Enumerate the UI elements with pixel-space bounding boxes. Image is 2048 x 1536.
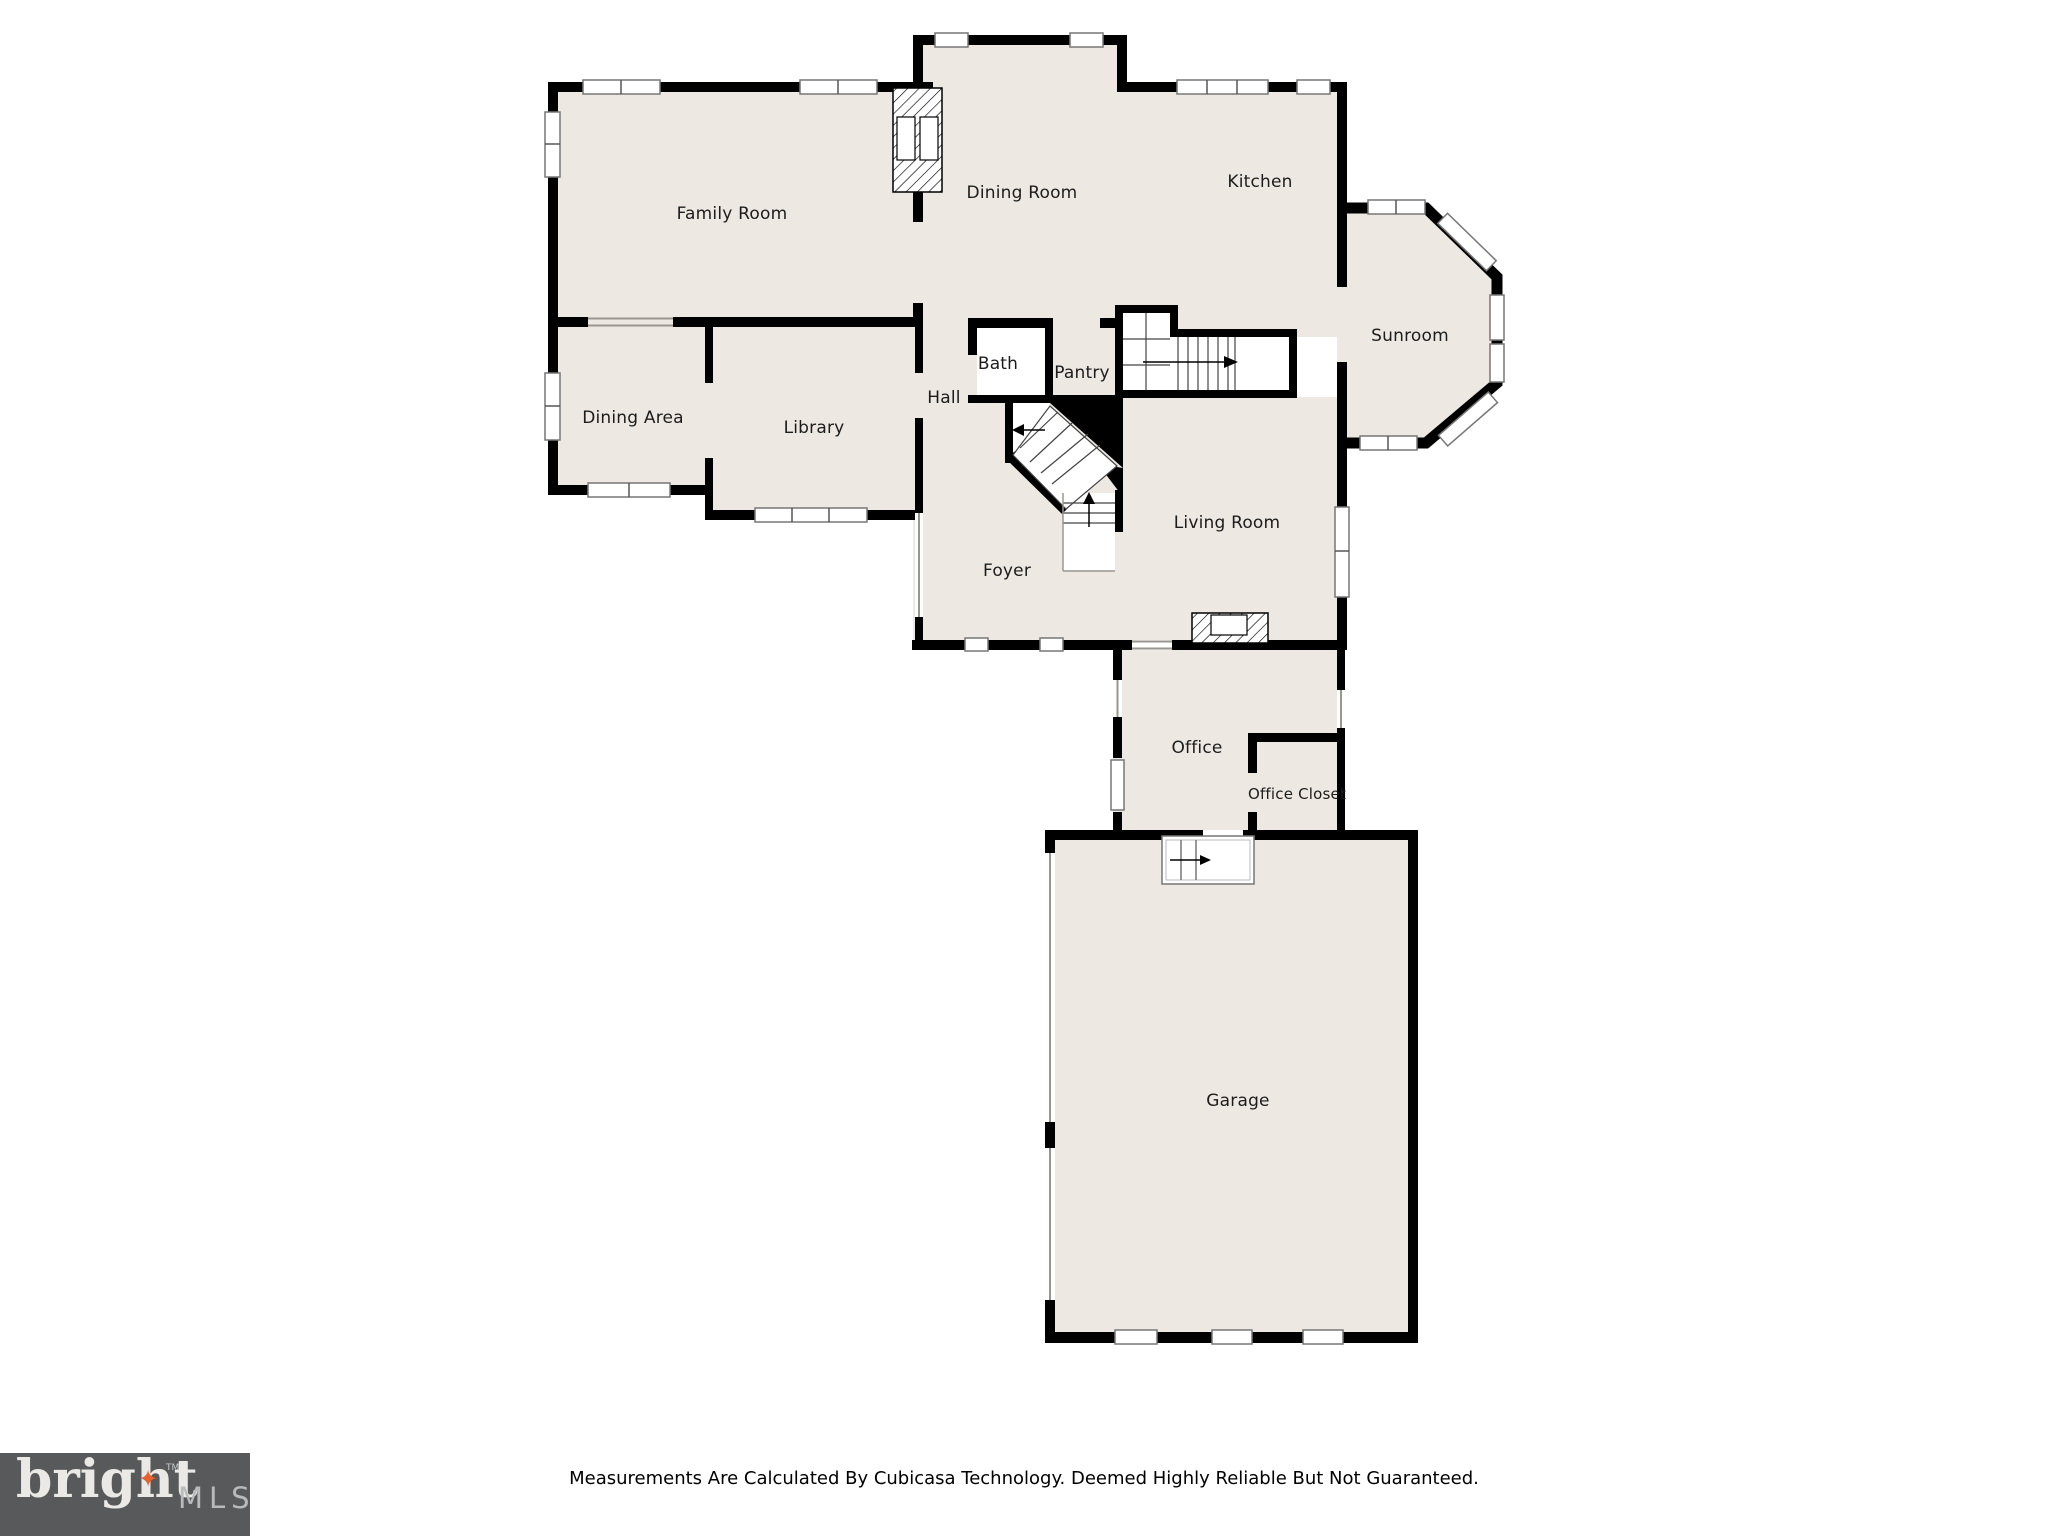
room-label-bath: Bath (978, 354, 1018, 374)
room-label-garage: Garage (1206, 1091, 1269, 1111)
logo-trademark: TM (166, 1463, 179, 1473)
logo-suffix-text: MLS (178, 1481, 256, 1515)
room-label-office-closet: Office Closet (1248, 785, 1346, 803)
logo-brand-text: bright (16, 1449, 198, 1510)
bright-mls-logo: bright ✦ TM MLS (0, 1453, 250, 1536)
room-label-dining-room: Dining Room (967, 183, 1078, 203)
room-label-pantry: Pantry (1054, 363, 1110, 383)
footer-disclaimer: Measurements Are Calculated By Cubicasa … (0, 1468, 2048, 1489)
room-label-living-room: Living Room (1174, 513, 1281, 533)
room-label-dining-area: Dining Area (582, 408, 684, 428)
garage-step (1162, 836, 1254, 884)
room-label-family-room: Family Room (677, 204, 788, 224)
floor-plan-drawing: Family Room Dining Room Kitchen Sunroom … (0, 0, 2048, 1536)
room-label-hall: Hall (927, 388, 960, 408)
room-label-library: Library (784, 418, 845, 438)
room-label-foyer: Foyer (983, 561, 1031, 581)
fireplace-living-icon (1192, 613, 1268, 643)
logo-star-icon: ✦ (138, 1465, 158, 1493)
room-label-office: Office (1171, 738, 1222, 758)
floor-plan-page: Family Room Dining Room Kitchen Sunroom … (0, 0, 2048, 1536)
room-label-sunroom: Sunroom (1371, 326, 1449, 346)
fireplace-family-icon (893, 88, 942, 192)
room-fills (548, 35, 1502, 1343)
room-label-kitchen: Kitchen (1227, 172, 1292, 192)
